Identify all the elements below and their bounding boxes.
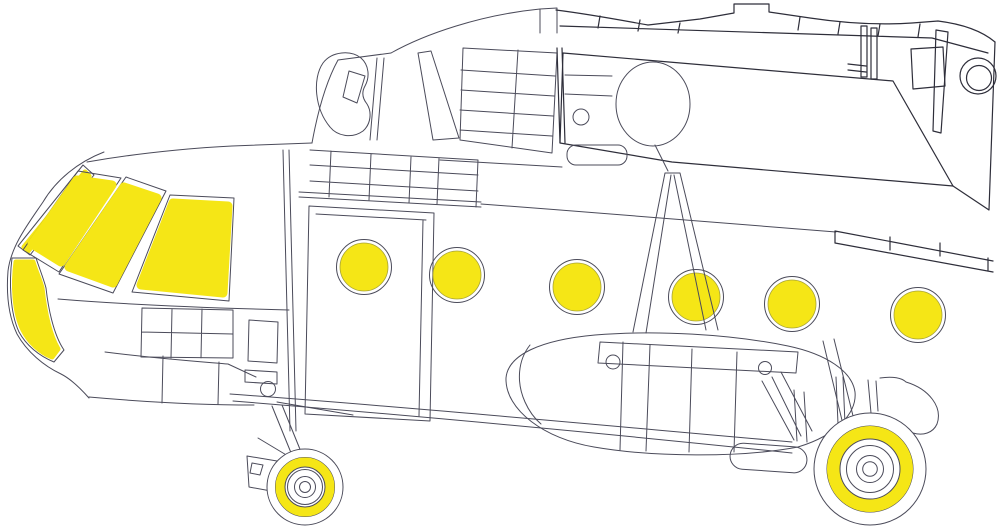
cowl-trapezoid-panel [418, 51, 459, 140]
tailboom-band [835, 231, 993, 272]
fuel-tank [506, 333, 856, 455]
overlay-rear-section [556, 4, 996, 272]
canopy-masks [10, 165, 234, 362]
roof-panel-grid [310, 150, 478, 207]
roof-rail-right [440, 160, 562, 167]
overlay-top-outline [556, 4, 995, 42]
rotor-hub-base [616, 62, 690, 146]
cockpit-bulkhead [283, 150, 296, 431]
hatch-strips [848, 26, 877, 79]
canopy-roofline [87, 143, 312, 162]
cowl-front-edge [312, 53, 391, 143]
intake-ear-fairing [316, 53, 370, 136]
windshield-mask-3 [141, 203, 228, 293]
porthole-mask-3 [553, 263, 601, 311]
porthole-mask-5 [768, 280, 816, 328]
door-rail [299, 192, 481, 207]
cabin-door [305, 206, 434, 421]
engine-deck-grid-panel [460, 48, 557, 153]
porthole-mask-6 [894, 291, 942, 339]
porthole-mask-1 [340, 243, 388, 291]
diagram-svg [0, 0, 1000, 527]
porthole-mask-2 [433, 251, 481, 299]
chin-window-mask [14, 262, 58, 357]
tail-window-outer [960, 58, 996, 94]
long-strip [933, 30, 948, 133]
avionics-panel-grid [141, 308, 233, 358]
access-square [911, 47, 945, 89]
tail-window-inner [967, 66, 992, 91]
mask-placement-diagram [0, 0, 1000, 527]
roof-peak [391, 8, 557, 53]
fuel-tank-outline [506, 333, 855, 455]
cabin-roofline [481, 204, 836, 232]
nose-lower-band [89, 352, 256, 405]
